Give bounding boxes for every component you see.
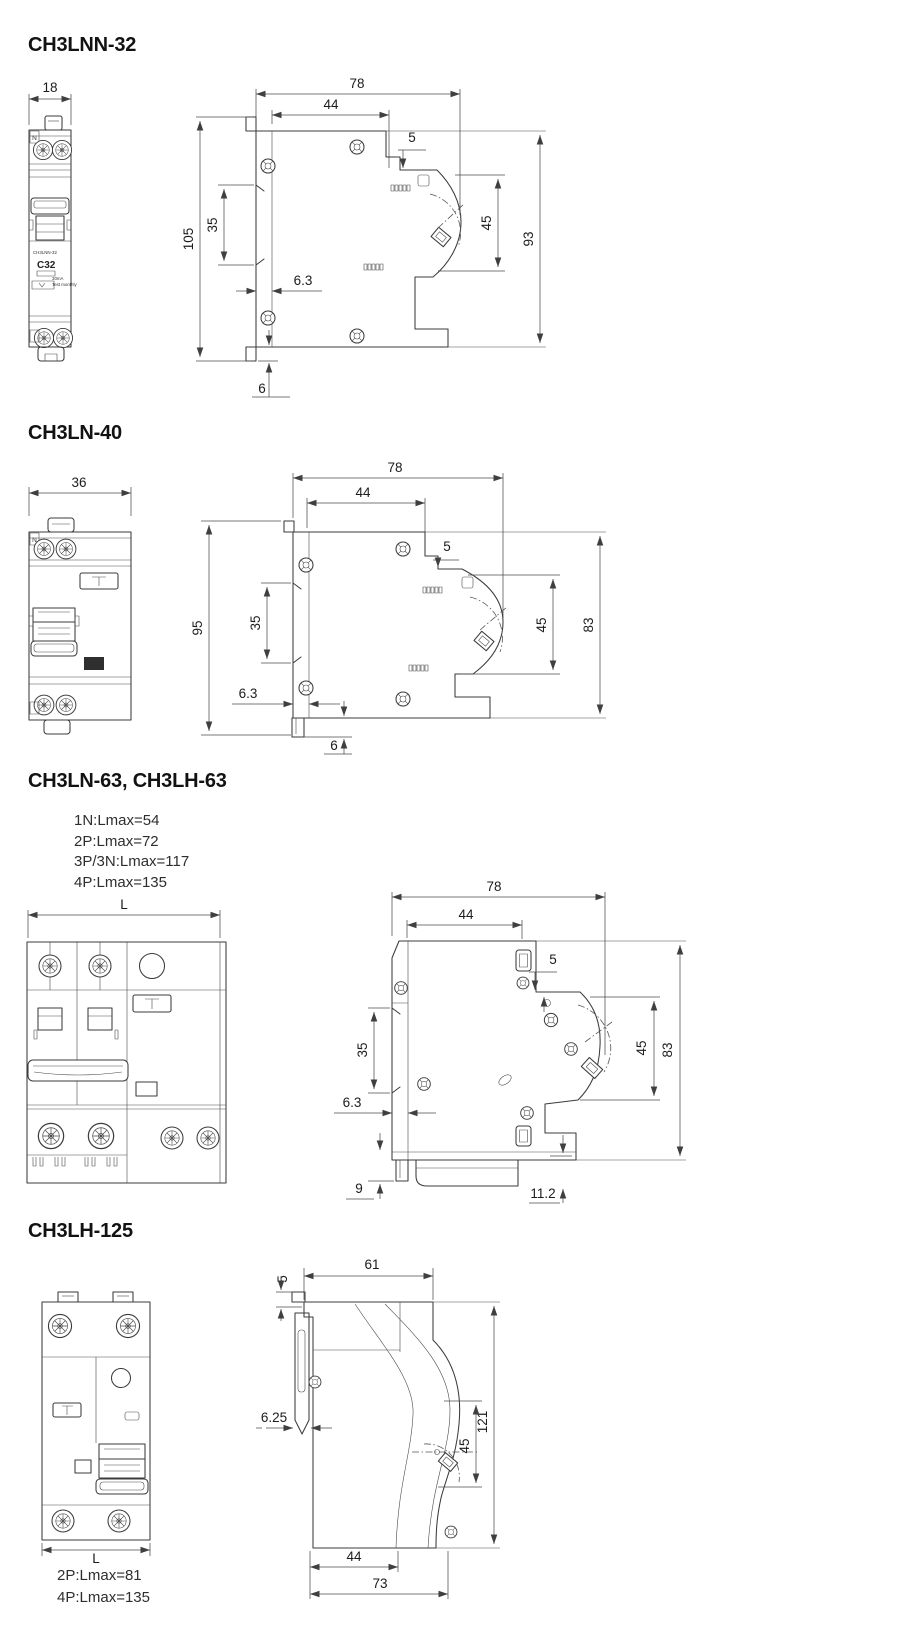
toggle-side bbox=[581, 1058, 602, 1079]
test-button bbox=[112, 1369, 131, 1388]
rivet-icon bbox=[396, 692, 410, 706]
s4-side-view: 61 5 6.25 121 bbox=[256, 1257, 500, 1599]
rail-hook-bottom bbox=[292, 718, 304, 737]
s3-front-view: L bbox=[27, 897, 226, 1183]
dim-step: 5 bbox=[443, 539, 451, 554]
dim-clip-extension: 6 bbox=[258, 381, 266, 396]
rail-notches bbox=[392, 1008, 400, 1093]
toggle-handle bbox=[31, 198, 69, 214]
terminal-screw-icon bbox=[89, 955, 111, 977]
dim-step: 5 bbox=[549, 952, 557, 967]
pole-mark: N bbox=[32, 135, 37, 142]
terminal-screw-icon bbox=[56, 539, 76, 559]
dim-body-height: 93 bbox=[521, 231, 536, 246]
toggle-side bbox=[431, 227, 451, 246]
dim-clip-extension: 6 bbox=[330, 738, 338, 753]
test-button-tab bbox=[133, 995, 171, 1012]
dim-rail-height: 35 bbox=[205, 217, 220, 232]
dim-rail-height: 35 bbox=[248, 615, 263, 630]
s2-front-view: 36 N bbox=[29, 475, 131, 734]
vent-slots-icon bbox=[364, 264, 383, 270]
rail-clip-column bbox=[295, 1313, 309, 1434]
s1-side-view: 78 44 5 105 bbox=[181, 76, 546, 397]
vent-slots-icon bbox=[409, 665, 428, 671]
terminal-screw-icon bbox=[116, 1314, 139, 1337]
dim-front-width: L bbox=[92, 1551, 100, 1566]
side-profile bbox=[293, 532, 503, 718]
dim-overall-depth: 78 bbox=[486, 879, 501, 894]
dim-front-height: 45 bbox=[457, 1438, 472, 1453]
dim-body-height: 83 bbox=[660, 1042, 675, 1057]
dim-front-height: 45 bbox=[634, 1040, 649, 1055]
vent-slots-icon bbox=[391, 185, 410, 191]
rivet-icon bbox=[261, 159, 275, 173]
rail-hook-top bbox=[284, 521, 294, 532]
rivet-icon bbox=[418, 1078, 431, 1091]
window-detail bbox=[125, 1412, 139, 1420]
rail-hook-top bbox=[246, 117, 256, 131]
terminal-screw-icon bbox=[33, 140, 52, 159]
drawings-canvas: 18 N CH3LNN-32 C32 30 bbox=[0, 0, 900, 1639]
dim-body-height: 83 bbox=[581, 617, 596, 632]
terminal-screw-icon bbox=[52, 1510, 74, 1532]
rail-hook-bottom bbox=[246, 347, 256, 361]
din-clip-top bbox=[45, 116, 62, 130]
pole-mark-box: N bbox=[30, 131, 39, 143]
toggle-bar bbox=[28, 1060, 128, 1081]
test-button-tab bbox=[80, 573, 118, 589]
residual-text: 30mA bbox=[52, 276, 64, 281]
breaker-body bbox=[29, 130, 71, 347]
label-window bbox=[136, 1082, 157, 1096]
rivet-icon bbox=[521, 1107, 534, 1120]
latch-mechanism bbox=[29, 216, 71, 240]
din-clip-top bbox=[58, 1292, 133, 1302]
pivot-hole bbox=[544, 1000, 551, 1007]
dim-upper-depth: 44 bbox=[323, 97, 339, 112]
rivet-icon bbox=[565, 1043, 578, 1056]
dim-rail-depth: 6.3 bbox=[239, 686, 258, 701]
s4-front-view: L bbox=[42, 1292, 150, 1566]
rivet-icon bbox=[299, 558, 313, 572]
terminal-screw-icon bbox=[108, 1510, 130, 1532]
vent-oval bbox=[497, 1073, 513, 1088]
dim-upper-depth: 61 bbox=[364, 1257, 379, 1272]
dim-overall-depth: 78 bbox=[387, 460, 402, 475]
test-note-text: Test monthly bbox=[52, 282, 77, 287]
rivet-icon bbox=[395, 982, 408, 995]
side-profile bbox=[256, 131, 461, 347]
terminal-screw-icon bbox=[39, 955, 61, 977]
toggle-side bbox=[438, 1453, 457, 1472]
dim-front-height: 45 bbox=[479, 215, 494, 230]
rivet-icon bbox=[261, 311, 275, 325]
rail-notches bbox=[293, 583, 301, 663]
dim-overall-height: 121 bbox=[475, 1411, 490, 1434]
s1-front-view: 18 N CH3LNN-32 C32 30 bbox=[29, 80, 77, 361]
label-window bbox=[75, 1460, 91, 1473]
terminal-screw-icon bbox=[52, 140, 71, 159]
dim-overall-height: 105 bbox=[181, 228, 196, 251]
rail-hook-top bbox=[292, 1292, 305, 1302]
rail-hook-bottom bbox=[396, 1160, 408, 1181]
rail-notches bbox=[256, 185, 264, 265]
terminal-screw-icon bbox=[34, 328, 53, 347]
terminal-screw-icon bbox=[88, 1123, 113, 1148]
dim-base-height: 11.2 bbox=[530, 1186, 555, 1201]
pole-handle bbox=[34, 1008, 62, 1039]
terminal-screw-icon bbox=[53, 328, 72, 347]
pole-handle bbox=[88, 1008, 118, 1039]
test-button-tab bbox=[53, 1403, 81, 1417]
rivet-icon bbox=[396, 542, 410, 556]
vent-slots-icon bbox=[423, 587, 442, 593]
din-clip-bottom bbox=[38, 347, 64, 361]
dim-clip-extension: 9 bbox=[355, 1181, 363, 1196]
dim-lower-depth: 44 bbox=[346, 1549, 362, 1564]
dim-overall-height: 95 bbox=[190, 620, 205, 635]
dim-overall-depth: 78 bbox=[349, 76, 364, 91]
din-clip-top bbox=[48, 518, 74, 532]
dim-front-width: 36 bbox=[71, 475, 86, 490]
datasheet-page: CH3LNN-32 CH3LN-40 CH3LN-63, CH3LH-63 CH… bbox=[0, 0, 900, 1639]
dim-overall-depth: 73 bbox=[372, 1576, 387, 1591]
dim-rail-height: 35 bbox=[355, 1042, 370, 1057]
toggle-side bbox=[474, 631, 494, 650]
dim-front-height: 45 bbox=[534, 617, 549, 632]
terminal-pins bbox=[33, 1157, 117, 1166]
terminal-screw-icon bbox=[34, 695, 54, 715]
terminal-screw-icon bbox=[38, 1123, 63, 1148]
dim-front-width: 18 bbox=[42, 80, 57, 95]
window-detail bbox=[462, 577, 473, 588]
rivet-icon bbox=[299, 681, 313, 695]
dim-rail-depth: 6.25 bbox=[261, 1410, 287, 1425]
s2-side-view: 78 44 5 95 bbox=[190, 460, 606, 754]
window-detail bbox=[418, 175, 429, 186]
toggle-assembly bbox=[96, 1444, 148, 1494]
toggle-assembly bbox=[29, 608, 79, 656]
molded-front-curves bbox=[355, 1304, 450, 1548]
side-profile bbox=[304, 1302, 460, 1548]
rivet-icon bbox=[309, 1376, 321, 1388]
s3-side-view: 78 44 bbox=[334, 879, 686, 1203]
dim-upper-depth: 44 bbox=[355, 485, 371, 500]
terminal-screw-icon bbox=[48, 1314, 71, 1337]
mounting-base bbox=[416, 1160, 518, 1186]
dim-rail-depth: 6.3 bbox=[294, 273, 313, 288]
dim-rail-depth: 6.3 bbox=[343, 1095, 362, 1110]
terminal-screw-icon bbox=[161, 1127, 183, 1149]
dim-step: 5 bbox=[275, 1275, 290, 1283]
rivet-icon bbox=[544, 1013, 557, 1026]
terminal-screw-icon bbox=[34, 539, 54, 559]
dim-step: 5 bbox=[408, 130, 416, 145]
model-text: CH3LNN-32 bbox=[33, 250, 57, 255]
indicator-window bbox=[84, 657, 104, 670]
terminal-screw-icon bbox=[197, 1127, 219, 1149]
rivet-icon bbox=[445, 1526, 457, 1538]
test-button bbox=[140, 954, 165, 979]
rating-text: C32 bbox=[37, 260, 56, 271]
terminal-screw-icon bbox=[56, 695, 76, 715]
dim-front-width: L bbox=[120, 897, 128, 912]
dim-upper-depth: 44 bbox=[458, 907, 474, 922]
rivet-icon bbox=[350, 329, 364, 343]
din-clip-bottom bbox=[44, 720, 70, 734]
rivet-icon bbox=[350, 140, 364, 154]
